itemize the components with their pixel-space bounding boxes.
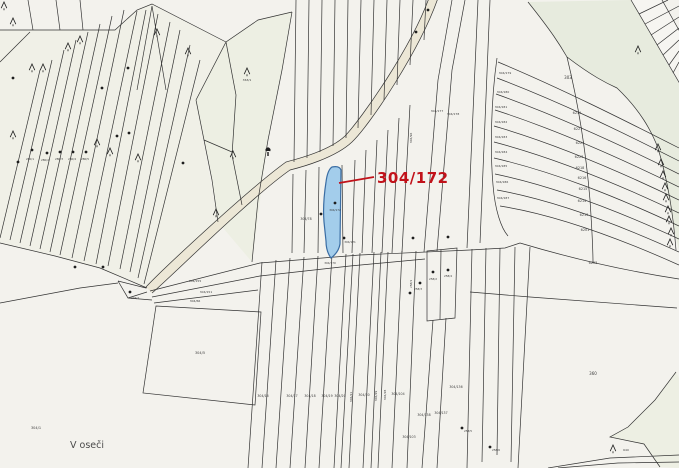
parcel-number-label: 280/4 [68,157,76,161]
parcel-number-label: 304/182 [495,120,508,124]
parcel-number-label: 304/137 [434,411,447,415]
parcel-number-label: 304/177 [431,109,444,113]
parcel-number-label: 304/172 [329,208,341,212]
boundary-dot [447,269,450,272]
cadastral-map[interactable]: 304/172 30362196227622462236218621662156… [0,0,679,468]
parcel-number-label: 304/184 [495,150,508,154]
boundary-dot [419,282,422,285]
parcel-number-label: 6214 [578,199,587,203]
parcel-number-label: 304/5 [195,351,205,355]
parcel-number-label: 303 [564,75,572,80]
parcel-number-label: 304/78 [300,217,311,221]
parcel-number-label: 6201 [581,228,590,232]
parcel-number-label: 304/104 [391,392,404,396]
boundary-dot [46,152,49,155]
parcel-number-label: 280/5 [81,157,89,161]
parcel-number-label: 304/136 [449,385,462,389]
parcel-number-label: 258/2 [429,277,437,281]
boundary-dot [412,237,415,240]
parcel-number-label: 304/181 [495,105,508,109]
parcel-number-label: 363/1 [243,78,252,82]
parcel-number-label: 304/19 [321,394,332,398]
parcel-number-label: 280/3 [55,157,63,161]
parcel-number-label: 6215 [579,187,588,191]
parcel-number-label: 258/1 [409,280,413,288]
parcel-number-label: 360 [589,371,597,376]
parcel-number-label: 304/28 [383,390,387,401]
parcel-number-label: 258/3 [414,287,422,291]
boundary-dot [128,132,131,135]
parcel-number-label: 6203 [589,261,598,265]
place-name-label: V oseči [70,440,104,451]
boundary-dot [129,291,132,294]
boundary-dot [415,31,418,34]
parcel-number-label: 304/185 [495,164,508,168]
parcel-number-label: 304/66 [190,299,201,303]
parcel-number-label: 304/178 [447,112,460,116]
parcel-number-label: 304/96 [409,133,413,144]
boundary-dot [74,266,77,269]
boundary-dot [31,149,34,152]
boundary-dot [334,202,337,205]
highlight-parcel-label: 304/172 [377,169,449,187]
boundary-dot [461,427,464,430]
parcel-number-label: 304/180 [497,90,510,94]
boundary-dot [59,151,62,154]
parcel-number-label: 304/151 [200,290,213,294]
boundary-dot [85,151,88,154]
boundary-dot [447,236,450,239]
boundary-dot [427,9,430,12]
parcel-number-label: 258/6 [492,448,500,452]
boundary-dot [72,151,75,154]
parcel-number-label: 304/103 [402,435,415,439]
boundary-dot [127,67,130,70]
boundary-dot [102,266,105,269]
parcel-number-label: 258/5 [464,429,472,433]
parcel-number-label: 6223 [575,155,584,159]
parcel-number-label: 304/170 [324,261,336,265]
parcel-number-label: 304/18 [304,394,315,398]
parcel-number-label: 304/1 [31,426,41,430]
boundary-dot [116,135,119,138]
boundary-dot [409,292,412,295]
parcel-number-label: 640 [623,448,629,452]
boundary-dot [17,161,20,164]
boundary-dot [182,162,185,165]
parcel-number-label: 258/4 [444,274,452,278]
parcel-number-label: 304/17 [286,394,297,398]
parcel-number-label: 304/29 [374,391,378,402]
parcel-number-label: 304/138 [417,413,430,417]
highlighted-parcel[interactable] [324,167,341,258]
parcel-number-label: 304/16 [257,394,268,398]
cadastral-map-viewport[interactable]: 304/172 30362196227622462236218621662156… [0,0,679,468]
parcel-number-label: 6219 [573,111,582,115]
parcel-number-label: 280/1 [26,157,34,161]
parcel-number-label: 304/186 [496,180,509,184]
parcel-number-label: 304/20 [334,394,345,398]
boundary-dot [432,271,435,274]
boundary-dot [343,237,346,240]
parcel-number-label: 304/171 [344,240,356,244]
parcel-number-label: 304/183 [495,135,508,139]
parcel-number-label: 6227 [574,127,583,131]
parcel-number-label: 6224 [576,141,585,145]
boundary-dot [489,446,492,449]
parcel-number-label: 280/2 [41,158,49,162]
parcel-number-label: 6213 [580,213,589,217]
parcel-number-label: 6218 [576,166,585,170]
parcel-number-label: 304/187 [497,196,510,200]
boundary-dot [101,87,104,90]
boundary-dot [320,213,323,216]
parcel-number-label: 6216 [578,176,587,180]
parcel-number-label: 304/21 [349,392,353,403]
parcel-number-label: 304/7 [131,296,139,300]
boundary-dot [12,77,15,80]
parcel-number-label: 304/179 [499,71,512,75]
parcel-number-label: 304/30 [358,393,369,397]
parcel-number-label: 304/155 [189,279,202,283]
